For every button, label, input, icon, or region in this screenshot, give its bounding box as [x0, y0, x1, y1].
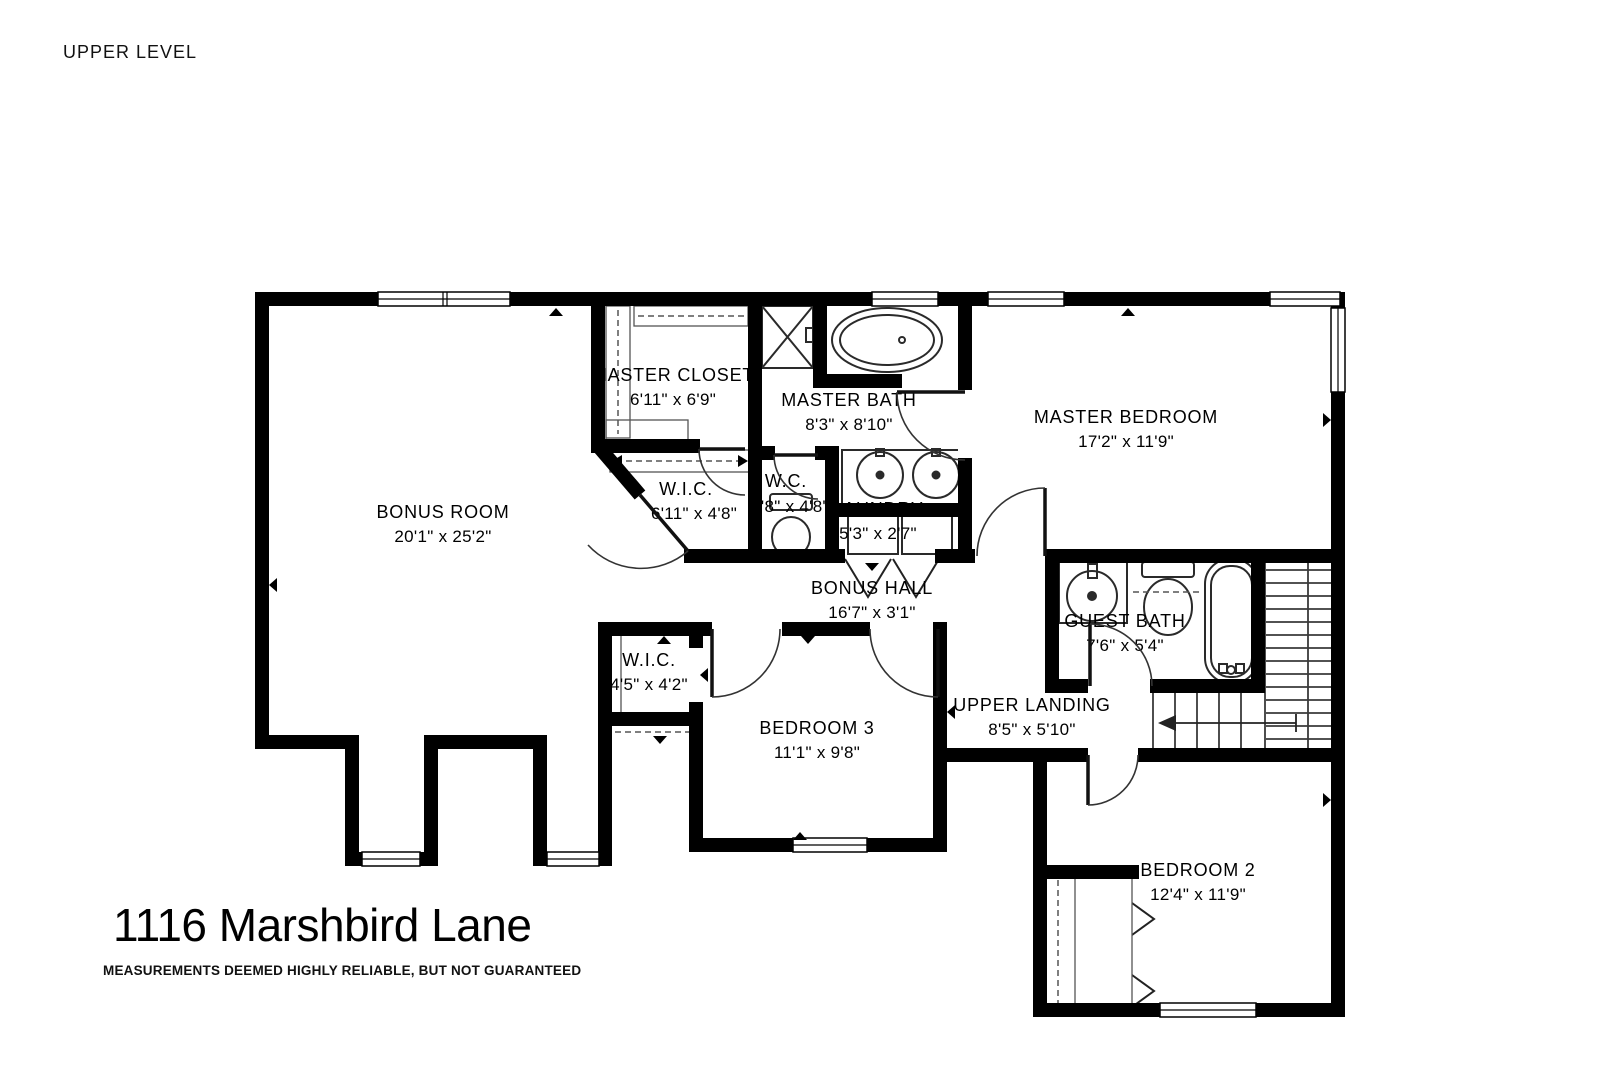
room-label-master-closet: MASTER CLOSET	[592, 365, 754, 385]
shower	[762, 306, 813, 368]
room-label-wic-master: W.I.C.	[659, 479, 713, 499]
room-dims-master-closet: 6'11" x 6'9"	[630, 390, 716, 409]
room-label-bedroom-2: BEDROOM 2	[1140, 860, 1255, 880]
room-dims-guest-bath: 7'6" x 5'4"	[1086, 636, 1164, 655]
shower-head-icon	[806, 328, 813, 342]
window	[988, 292, 1064, 306]
room-label-bonus-hall: BONUS HALL	[811, 578, 933, 598]
room-dims-master-bath: 8'3" x 8'10"	[805, 415, 892, 434]
room-label-upper-landing: UPPER LANDING	[953, 695, 1110, 715]
window	[378, 292, 510, 306]
room-label-bedroom-3: BEDROOM 3	[759, 718, 874, 738]
tub-faucet-icon	[1227, 666, 1235, 674]
room-dims-master-bedroom: 17'2" x 11'9"	[1078, 432, 1174, 451]
window	[362, 852, 420, 866]
window	[872, 292, 938, 306]
window	[1331, 308, 1345, 392]
room-label-guest-bath: GUEST BATH	[1064, 611, 1185, 631]
floor-plan-page: UPPER LEVEL	[0, 0, 1620, 1080]
guest-toilet-tank	[1142, 562, 1194, 577]
room-dims-wc: 2'8" x 4'8"	[751, 497, 829, 516]
room-dims-bedroom-3: 11'1" x 9'8"	[774, 743, 860, 762]
room-label-wc: W.C.	[765, 471, 807, 491]
room-dims-bedroom-2: 12'4" x 11'9"	[1150, 885, 1246, 904]
double-vanity	[842, 449, 959, 505]
room-label-bonus-room: BONUS ROOM	[376, 502, 509, 522]
disclaimer-text: MEASUREMENTS DEEMED HIGHLY RELIABLE, BUT…	[103, 963, 581, 978]
room-dims-upper-landing: 8'5" x 5'10"	[988, 720, 1075, 739]
plan-footer: 1116 Marshbird Lane MEASUREMENTS DEEMED …	[103, 900, 581, 978]
window	[1160, 1003, 1256, 1017]
window	[547, 852, 599, 866]
window	[1270, 292, 1340, 306]
stairs	[1153, 563, 1331, 748]
room-dims-bonus-room: 20'1" x 25'2"	[394, 527, 491, 546]
room-dims-wic-2: 4'5" x 4'2"	[610, 675, 688, 694]
stairs-direction-arrow	[1158, 715, 1176, 731]
window	[793, 838, 867, 852]
address-title: 1116 Marshbird Lane	[103, 900, 581, 951]
door-leaves	[640, 392, 1090, 805]
master-tub	[832, 308, 942, 372]
room-label-master-bedroom: MASTER BEDROOM	[1034, 407, 1218, 427]
room-dims-bonus-hall: 16'7" x 3'1"	[828, 603, 915, 622]
room-dims-laundry: 5'3" x 2'7"	[839, 524, 917, 543]
room-label-wic-2: W.I.C.	[622, 650, 676, 670]
